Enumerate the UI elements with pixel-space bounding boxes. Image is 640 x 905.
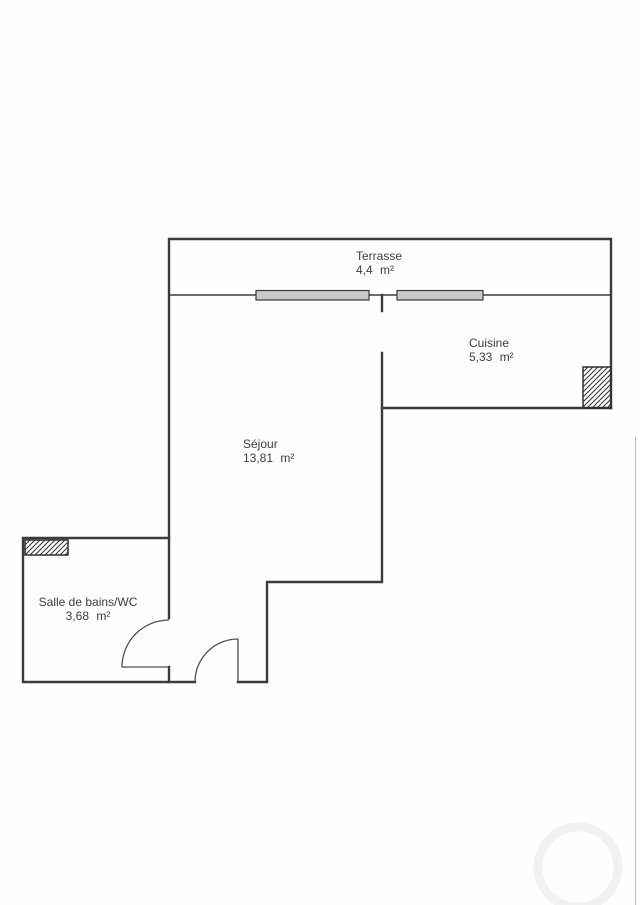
room-area-cuisine: 5,33 m² — [469, 350, 514, 364]
room-area-terrasse: 4,4 m² — [356, 263, 402, 277]
hatch-block-bathroom — [25, 540, 68, 555]
wall-outer-top — [169, 239, 611, 618]
hatch-block-cuisine — [583, 367, 611, 408]
doors-group — [122, 620, 238, 682]
room-name-terrasse: Terrasse — [356, 249, 402, 263]
room-name-sejour: Séjour — [243, 437, 294, 451]
terrace-windows-group — [256, 291, 483, 301]
hatch-blocks-group — [25, 367, 611, 555]
room-name-cuisine: Cuisine — [469, 336, 514, 350]
room-name-salle-de-bains: Salle de bains/WC — [38, 595, 138, 609]
door-swing-bathroom — [122, 620, 169, 667]
wall-sejour-right-step — [238, 353, 382, 682]
floor-plan-page: Terrasse 4,4 m² Cuisine 5,33 m² Séjour 1… — [0, 0, 640, 905]
room-label-sejour: Séjour 13,81 m² — [243, 437, 294, 465]
room-label-salle-de-bains: Salle de bains/WC 3,68 m² — [38, 595, 138, 623]
room-area-sejour: 13,81 m² — [243, 451, 294, 465]
room-label-cuisine: Cuisine 5,33 m² — [469, 336, 514, 364]
watermark-circle-icon — [538, 827, 618, 905]
terrace-window-right — [397, 291, 483, 301]
room-label-terrasse: Terrasse 4,4 m² — [356, 249, 402, 277]
door-swing-entrance — [195, 639, 238, 682]
floor-plan-drawing — [0, 0, 640, 905]
terrace-window-left — [256, 291, 369, 301]
room-area-salle-de-bains: 3,68 m² — [38, 609, 138, 623]
